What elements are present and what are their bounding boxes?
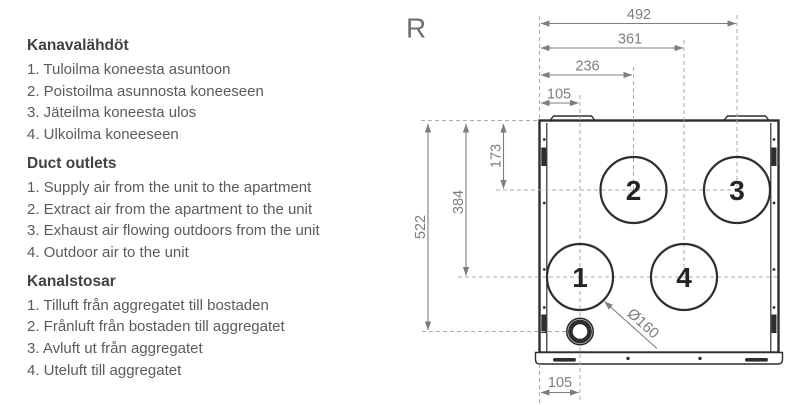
dim-label-361: 361 xyxy=(618,32,642,48)
dim-label-105-top: 105 xyxy=(547,87,571,103)
technical-drawing: R xyxy=(0,0,800,405)
port-1-number: 1 xyxy=(572,262,588,293)
dim-label-105-bottom: 105 xyxy=(548,375,572,391)
edge-rivet xyxy=(543,268,546,271)
dim-label-384: 384 xyxy=(451,190,467,214)
view-label: R xyxy=(406,13,426,44)
port-2-number: 2 xyxy=(626,175,642,206)
flange-screw xyxy=(626,357,629,360)
foot-right xyxy=(745,358,768,362)
latch-left-top xyxy=(541,148,546,167)
port-4-number: 4 xyxy=(676,262,692,293)
latch-right-top xyxy=(772,148,777,167)
edge-rivet xyxy=(773,268,776,271)
edge-rivet xyxy=(773,202,776,205)
dim-label-236: 236 xyxy=(575,59,599,75)
dim-label-173: 173 xyxy=(489,144,505,168)
flange-screw xyxy=(698,357,701,360)
port-3-number: 3 xyxy=(729,175,745,206)
edge-rivet xyxy=(773,138,776,141)
foot-left xyxy=(553,358,576,362)
latch-right-bottom xyxy=(772,315,777,334)
dim-label-522: 522 xyxy=(413,215,429,239)
dim-label-492: 492 xyxy=(627,7,651,23)
drain-connection xyxy=(567,318,593,344)
latch-left-bottom xyxy=(541,315,546,334)
edge-rivet xyxy=(543,138,546,141)
unit-outline xyxy=(540,121,779,353)
edge-rivet xyxy=(543,306,546,309)
edge-rivet xyxy=(543,202,546,205)
edge-rivet xyxy=(773,306,776,309)
